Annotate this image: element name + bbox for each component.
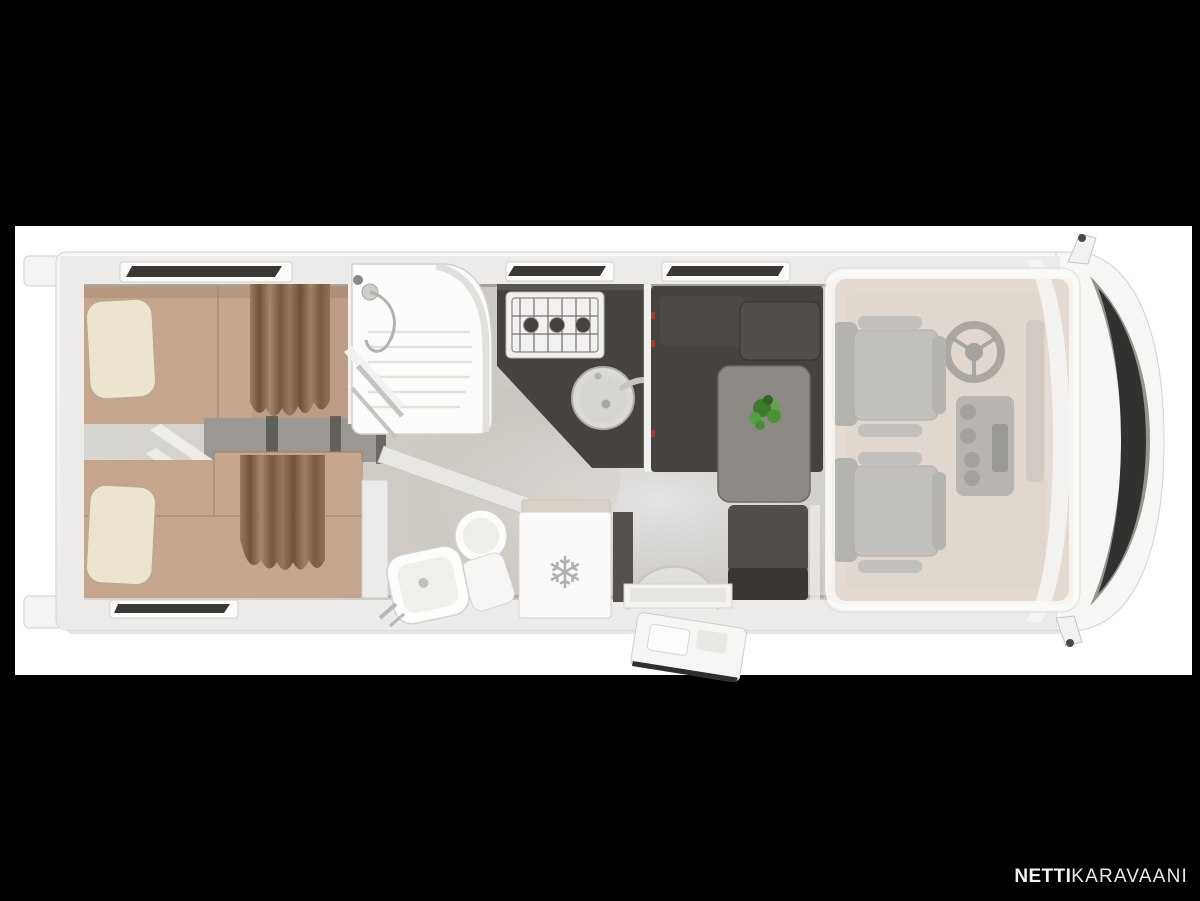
shower-cabin: [344, 264, 492, 438]
burner-3: [576, 318, 591, 333]
window-bed-bottom: [114, 604, 230, 613]
sink-bowl: [579, 375, 627, 423]
mirror-glass-top: [1078, 234, 1086, 242]
snowflake-icon: ❄: [547, 548, 584, 599]
counter-back-edge: [497, 284, 646, 290]
window-dinette: [666, 266, 784, 276]
pillow-top: [85, 298, 156, 399]
seat-belt-clip-3: [651, 430, 655, 437]
fridge: ❄: [519, 500, 633, 618]
toilet-seat: [463, 518, 499, 554]
bathroom-wall: [362, 480, 388, 598]
kitchen-divider-wall: [644, 284, 651, 472]
sofa-back-cushion: [660, 296, 744, 346]
sink-drain: [602, 400, 611, 409]
curtain-bottom-bed: [240, 455, 325, 570]
seat-side-panel: [810, 505, 820, 600]
burner-1: [524, 318, 539, 333]
entry: [624, 584, 747, 682]
door-inner-step: [647, 624, 691, 656]
watermark-bold: NETTI: [1014, 866, 1071, 887]
entry-step: [630, 588, 726, 602]
curtain-top-bed: [250, 284, 330, 416]
shower-mixer: [353, 275, 363, 285]
nettikaravaani-watermark: NETTIKARAVAANI: [1014, 867, 1188, 887]
watermark-light: KARAVAANI: [1071, 866, 1188, 887]
single-seat-cushion: [728, 568, 808, 600]
burner-2: [550, 318, 565, 333]
motorhome-floorplan: ❄: [0, 0, 1200, 901]
seat-belt-clip-2: [651, 340, 655, 347]
single-seat-back: [728, 505, 808, 573]
window-kitchen: [508, 266, 606, 276]
wall-rear: [60, 256, 86, 630]
seat-belt-clip-1: [651, 312, 655, 319]
pillow-bottom: [85, 484, 156, 585]
dinette-table: [718, 366, 810, 502]
overcab-haze: [826, 270, 1078, 610]
window-bed-top: [126, 266, 282, 277]
sink-plug: [595, 373, 602, 380]
mirror-glass-bottom: [1066, 639, 1074, 647]
cab: [824, 260, 1080, 622]
sofa-seat-cushion: [740, 302, 820, 360]
screenshot-root: ❄: [0, 0, 1200, 901]
